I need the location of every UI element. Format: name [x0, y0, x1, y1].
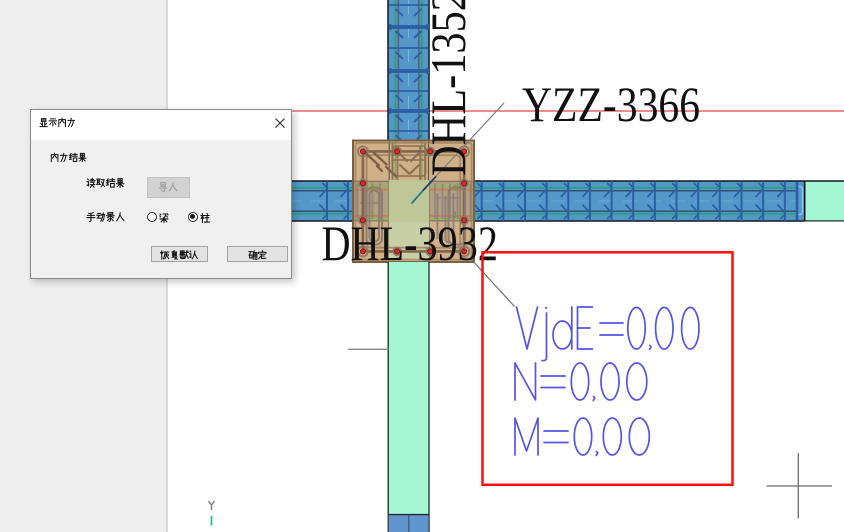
svg-text:DHL-3932: DHL-3932	[322, 215, 499, 271]
svg-text:YZZ-3366: YZZ-3366	[522, 76, 700, 132]
svg-text:DHL-1352: DHL-1352	[420, 0, 476, 176]
